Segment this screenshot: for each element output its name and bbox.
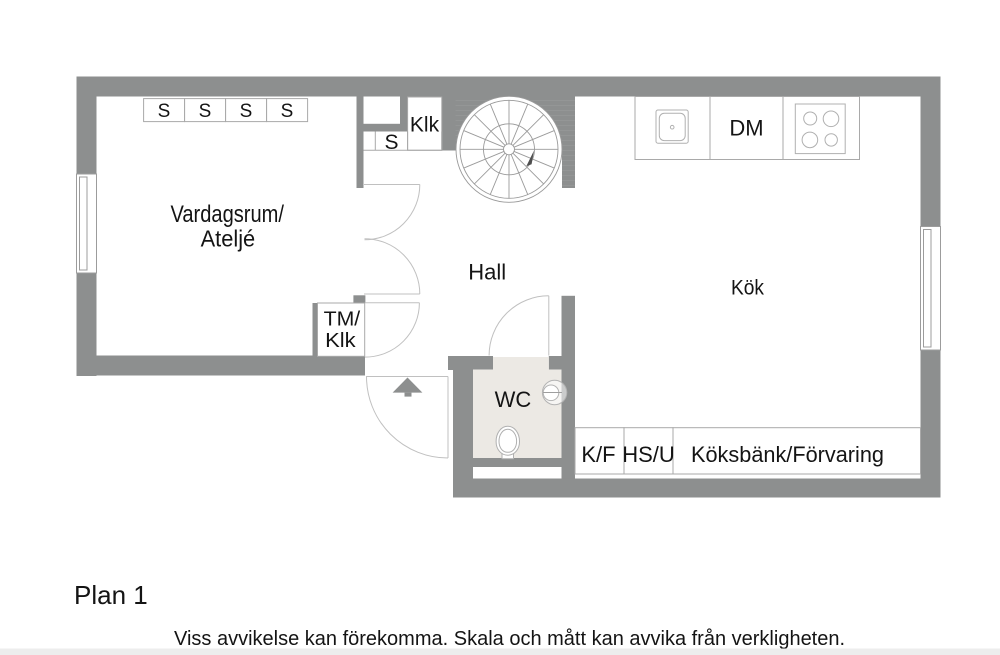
svg-text:Plan 1: Plan 1	[74, 580, 148, 610]
svg-text:Viss avvikelse kan förekomma.: Viss avvikelse kan förekomma. Skala och …	[174, 628, 845, 650]
svg-text:S: S	[384, 131, 398, 154]
svg-text:Kök: Kök	[731, 276, 764, 300]
svg-text:DM: DM	[729, 116, 763, 141]
svg-text:TM/: TM/	[324, 308, 361, 331]
svg-text:S: S	[199, 101, 212, 122]
svg-text:Klk: Klk	[410, 114, 440, 137]
svg-text:S: S	[158, 101, 171, 122]
svg-text:Ateljé: Ateljé	[201, 225, 256, 251]
svg-text:WC: WC	[495, 387, 532, 412]
svg-text:Hall: Hall	[468, 260, 506, 285]
svg-text:HS/U: HS/U	[622, 442, 675, 467]
svg-text:S: S	[281, 101, 294, 122]
svg-text:Klk: Klk	[325, 329, 356, 352]
svg-text:S: S	[240, 101, 253, 122]
svg-text:Köksbänk/Förvaring: Köksbänk/Förvaring	[691, 442, 884, 467]
svg-text:Vardagsrum/: Vardagsrum/	[171, 201, 285, 228]
svg-text:K/F: K/F	[581, 442, 615, 467]
